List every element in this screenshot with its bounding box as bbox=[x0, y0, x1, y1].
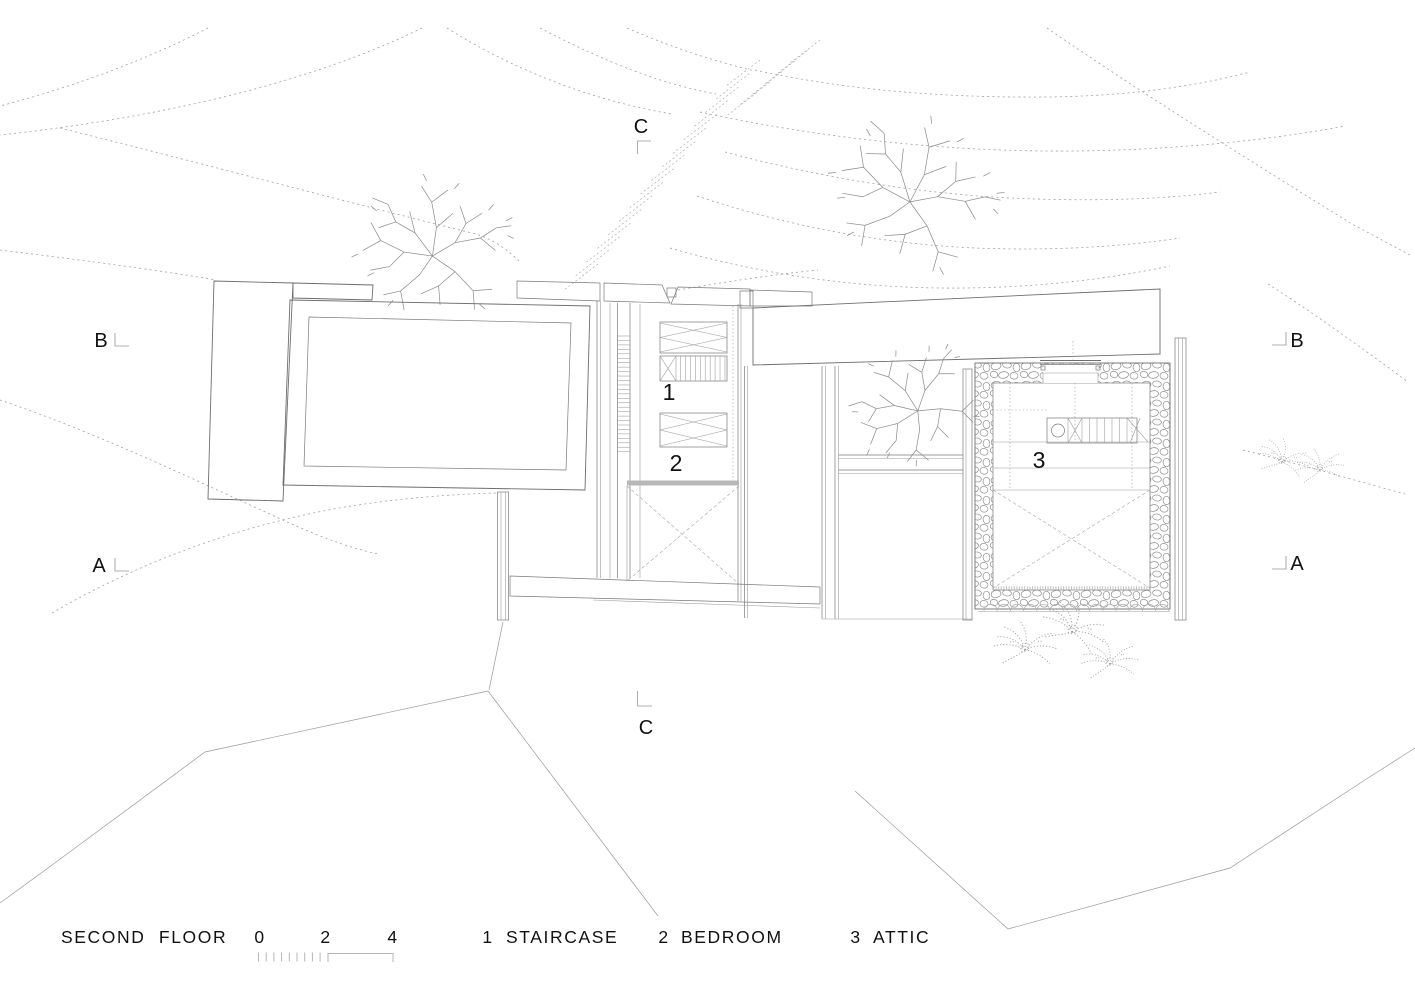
legend-label-staircase: STAIRCASE bbox=[506, 927, 618, 947]
legend-num-2: 2 bbox=[658, 927, 669, 947]
section-marker-c-bottom: C bbox=[638, 691, 654, 739]
shrub-right bbox=[1254, 435, 1347, 489]
scale-bar-bracket bbox=[328, 954, 393, 963]
legend-label-bedroom: BEDROOM bbox=[681, 927, 783, 947]
legend-num-1: 1 bbox=[482, 927, 493, 947]
legend-label-attic: ATTIC bbox=[873, 927, 930, 947]
floor-plan-drawing: 1 2 3 C C B B A A SECOND FLOOR 0 2 4 bbox=[0, 0, 1415, 1000]
floor-title: SECOND FLOOR bbox=[61, 927, 227, 947]
legend-item-staircase: 1 STAIRCASE bbox=[482, 927, 618, 947]
section-marker-c-top-label: C bbox=[634, 116, 648, 138]
scale-bar-ticks bbox=[259, 953, 321, 962]
section-marker-b-right: B bbox=[1272, 330, 1304, 352]
section-marker-c-bottom-label: C bbox=[639, 717, 653, 739]
room-label-staircase: 1 bbox=[663, 379, 676, 405]
attic-east-railing bbox=[1175, 338, 1186, 620]
scale-tick-0: 0 bbox=[254, 927, 265, 947]
room-label-bedroom: 2 bbox=[670, 450, 683, 476]
middle-building bbox=[498, 281, 821, 620]
beam bbox=[627, 481, 739, 486]
west-wall-stub bbox=[498, 492, 509, 620]
legend: SECOND FLOOR 0 2 4 1 STAIRCASE 2 BEDROOM… bbox=[61, 927, 930, 962]
section-marker-b-left-label: B bbox=[94, 330, 107, 352]
floor-plan-page: 1 2 3 C C B B A A SECOND FLOOR 0 2 4 bbox=[0, 0, 1415, 1000]
scale-bar: 0 2 4 bbox=[254, 927, 398, 962]
section-marker-a-left: A bbox=[92, 555, 129, 577]
section-marker-b-right-label: B bbox=[1290, 330, 1303, 352]
attic-west-railing bbox=[963, 369, 972, 620]
left-building-roof bbox=[208, 281, 590, 501]
slope-hatching bbox=[564, 40, 820, 290]
courtyard bbox=[822, 366, 972, 619]
tree-top-right bbox=[805, 86, 1024, 296]
room-label-attic: 3 bbox=[1033, 447, 1046, 473]
scale-tick-2: 2 bbox=[320, 927, 331, 947]
section-marker-a-right: A bbox=[1272, 553, 1304, 575]
section-marker-c-top: C bbox=[634, 116, 651, 154]
attic-entry-opening bbox=[1040, 341, 1101, 383]
section-marker-a-left-label: A bbox=[92, 555, 106, 577]
legend-item-attic: 3 ATTIC bbox=[850, 927, 930, 947]
attic-building bbox=[963, 338, 1186, 620]
terrain-lines bbox=[0, 622, 1415, 929]
legend-item-bedroom: 2 BEDROOM bbox=[658, 927, 782, 947]
section-marker-b-left: B bbox=[94, 330, 129, 352]
roof-upper bbox=[740, 289, 1160, 365]
scale-tick-4: 4 bbox=[387, 927, 398, 947]
section-marker-a-right-label: A bbox=[1290, 553, 1304, 575]
legend-num-3: 3 bbox=[850, 927, 861, 947]
